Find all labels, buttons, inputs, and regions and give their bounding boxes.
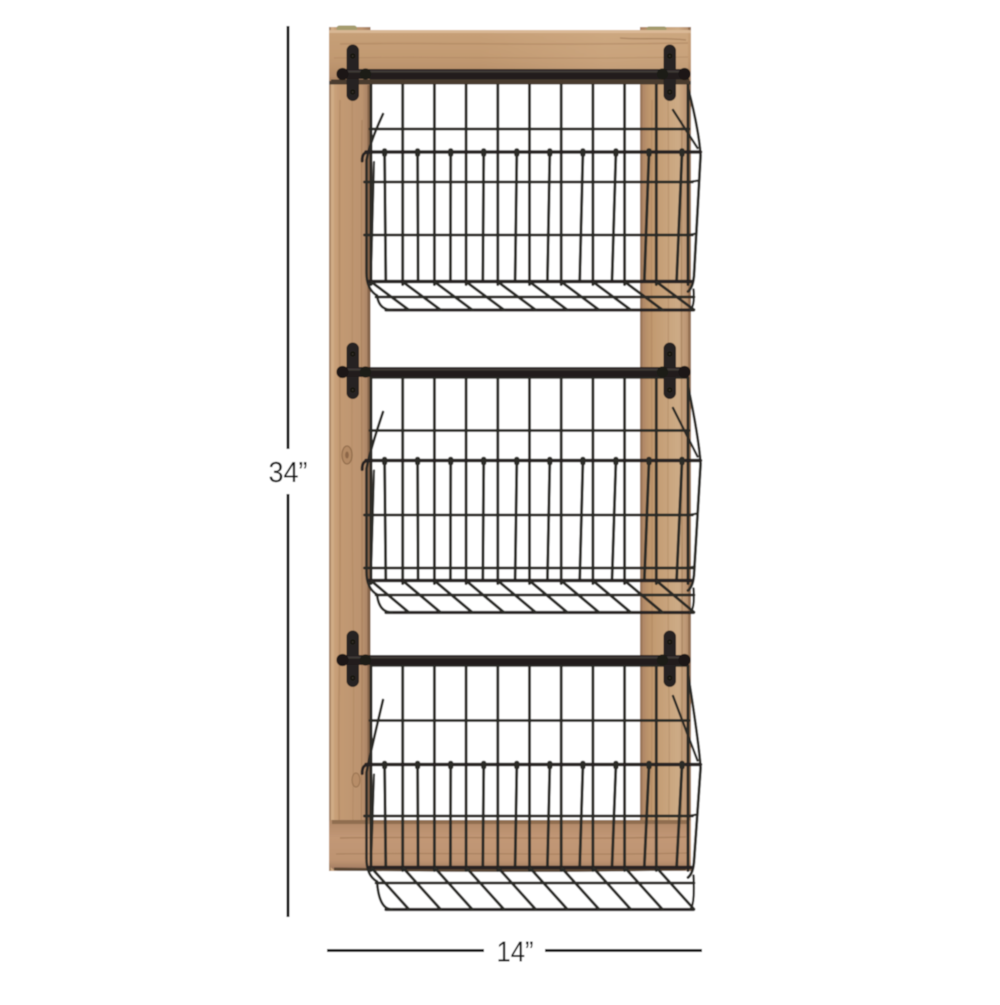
svg-text:34”: 34” [269, 457, 308, 489]
svg-text:14”: 14” [497, 937, 534, 969]
